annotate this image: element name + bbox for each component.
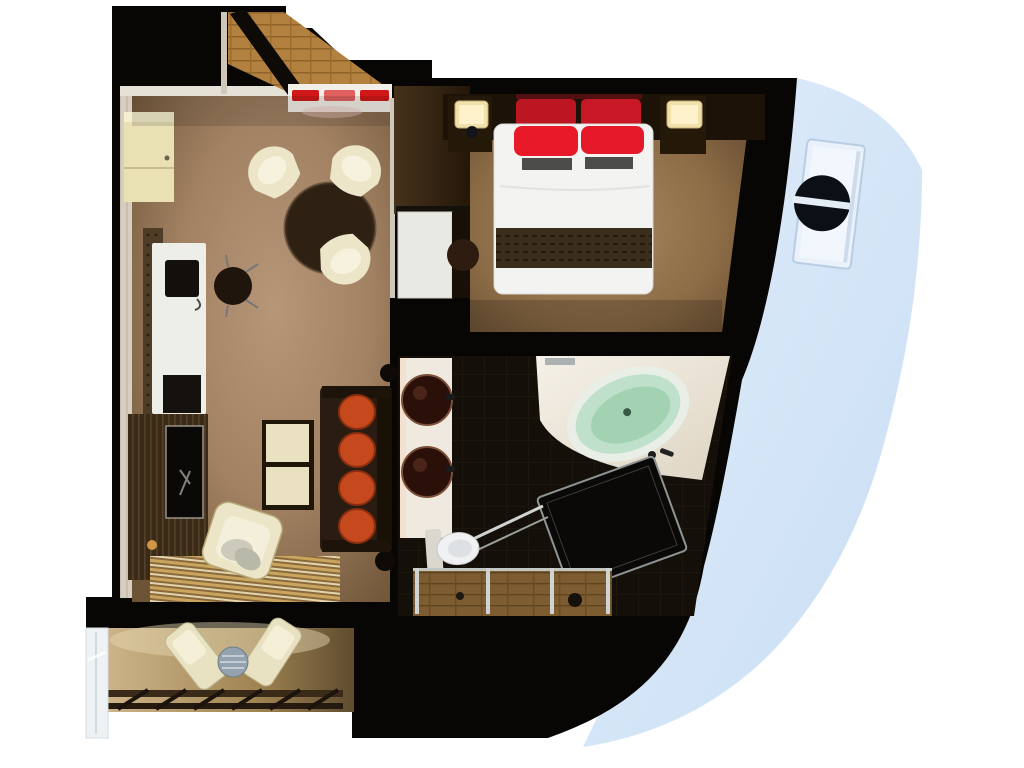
glass-door-frame bbox=[486, 568, 490, 614]
shower-fixture bbox=[545, 358, 575, 365]
shadow-top-living bbox=[132, 96, 390, 126]
bed-pillow-red bbox=[581, 126, 644, 154]
vessel-sink bbox=[402, 375, 452, 425]
orange-cushion bbox=[339, 471, 375, 505]
bath-wood-floor bbox=[413, 568, 612, 616]
stool bbox=[447, 239, 479, 271]
double-sink-counter bbox=[400, 358, 455, 538]
pillow-throw bbox=[522, 158, 572, 170]
ottoman bbox=[262, 420, 314, 510]
orange-cushion bbox=[339, 509, 375, 543]
orange-cushion bbox=[339, 433, 375, 467]
desk-chair bbox=[214, 267, 252, 305]
sofa bbox=[320, 364, 398, 571]
railing-bottom-rail bbox=[103, 703, 343, 709]
pillow-throw bbox=[585, 157, 633, 169]
floor-lamp bbox=[380, 364, 398, 382]
top-wall-strip bbox=[120, 86, 292, 96]
floor-fixture bbox=[456, 592, 464, 600]
ottoman-cushion bbox=[266, 424, 309, 462]
glass-door-frame bbox=[415, 568, 419, 614]
faucet bbox=[446, 394, 455, 400]
glass-door-frame bbox=[606, 568, 610, 614]
shadow-bed-foot bbox=[470, 300, 722, 332]
ottoman-cushion bbox=[266, 467, 309, 505]
floor-plan-canvas bbox=[0, 0, 1024, 768]
glass-door-frame bbox=[550, 568, 554, 614]
bedroom bbox=[390, 86, 765, 332]
side-table bbox=[375, 551, 395, 571]
tv bbox=[166, 426, 203, 518]
door-frame bbox=[221, 12, 227, 94]
glass-door-track bbox=[413, 568, 612, 571]
closet-handle bbox=[165, 156, 170, 161]
bed-pillow-red bbox=[514, 126, 578, 156]
orange-cushion bbox=[339, 395, 375, 429]
double-bed bbox=[494, 124, 653, 294]
glass-partition-panel bbox=[86, 628, 108, 738]
counter-glow bbox=[400, 358, 406, 538]
shelf-pillow-red bbox=[516, 99, 576, 127]
faucet bbox=[446, 466, 455, 472]
carafe bbox=[466, 126, 478, 138]
bathroom bbox=[398, 348, 732, 616]
candle-glow bbox=[147, 540, 157, 550]
sink-highlight bbox=[413, 386, 427, 400]
shelf-pillow-red bbox=[581, 99, 641, 127]
bath-entry-floor bbox=[413, 568, 612, 616]
vessel-sink bbox=[402, 447, 452, 497]
sink-highlight bbox=[413, 458, 427, 472]
desk-equipment bbox=[163, 375, 201, 413]
headboard-glow bbox=[516, 94, 642, 99]
bed-runner bbox=[496, 228, 652, 268]
floor-fixture bbox=[568, 593, 582, 607]
laptop bbox=[165, 260, 199, 297]
floor-plan bbox=[0, 0, 1024, 768]
lamp-shade bbox=[671, 105, 698, 124]
tv-cabinet bbox=[128, 414, 208, 580]
lamp-shade bbox=[459, 105, 484, 124]
balcony bbox=[86, 615, 354, 738]
sofa-backrest bbox=[377, 390, 392, 548]
vanity-desk bbox=[398, 212, 452, 298]
